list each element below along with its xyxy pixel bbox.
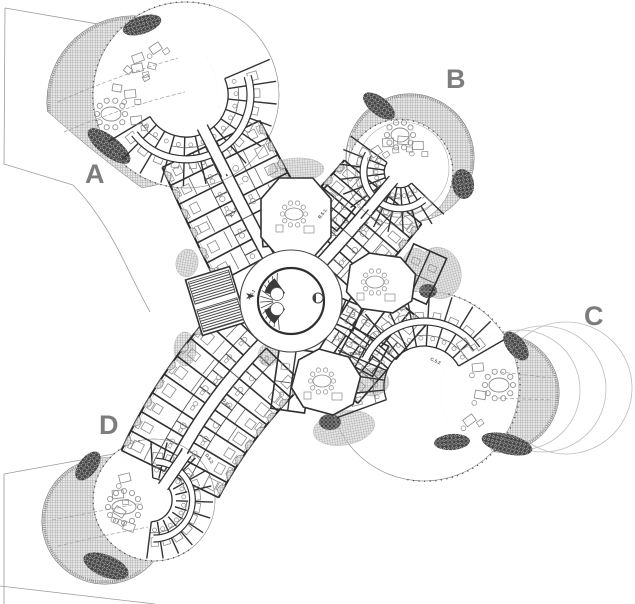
svg-text:D: D — [99, 410, 119, 440]
svg-text:A: A — [85, 159, 105, 189]
svg-text:B: B — [446, 64, 466, 94]
svg-text:C: C — [584, 301, 604, 331]
svg-text:C.5.1.: C.5.1. — [350, 351, 362, 356]
